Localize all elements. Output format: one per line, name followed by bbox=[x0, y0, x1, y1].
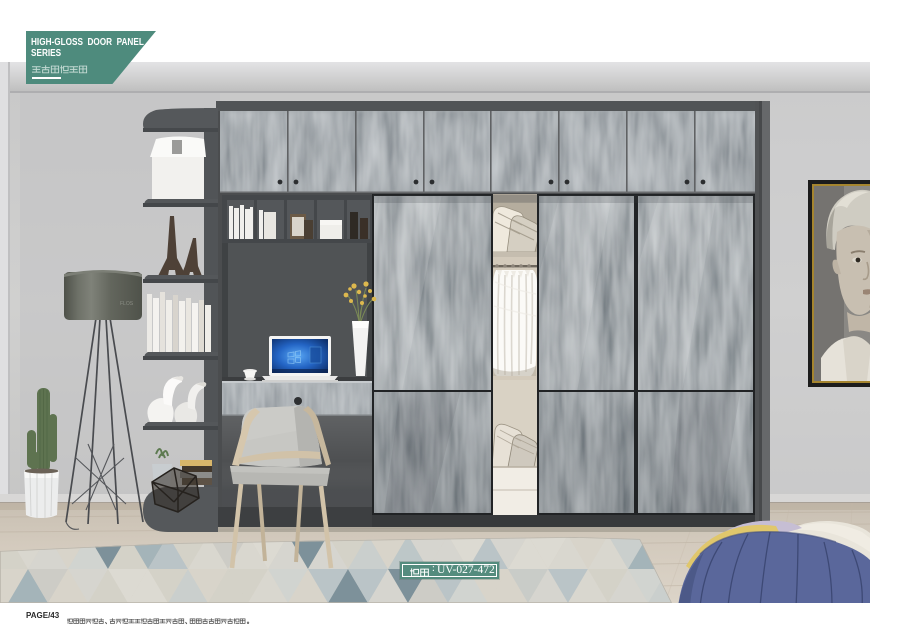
svg-text:FLOS: FLOS bbox=[120, 301, 134, 307]
